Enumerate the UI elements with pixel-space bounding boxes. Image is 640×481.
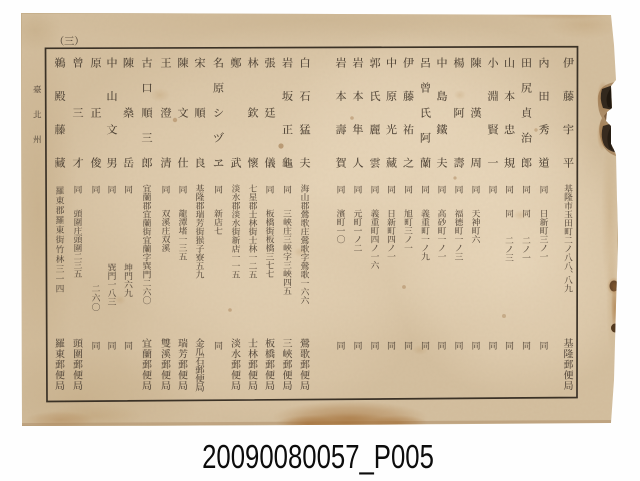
svg-text:20090080057_P005: 20090080057_P005 — [202, 439, 434, 476]
